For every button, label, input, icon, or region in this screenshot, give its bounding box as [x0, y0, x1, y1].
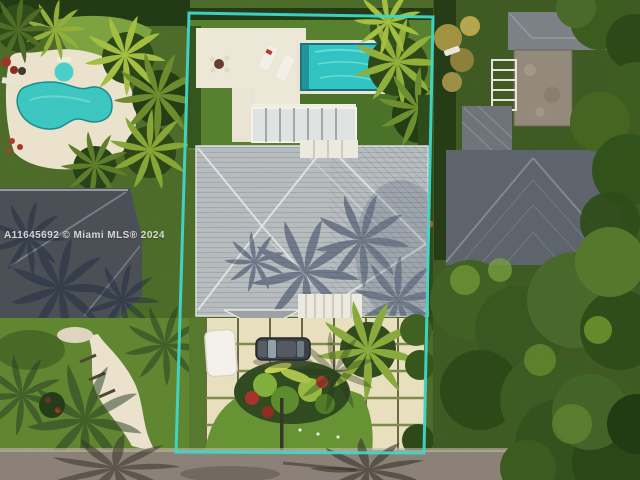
mls-watermark: A11645692 © Miami MLS® 2024 [4, 230, 165, 241]
aerial-photo: A11645692 © Miami MLS® 2024 [0, 0, 640, 480]
